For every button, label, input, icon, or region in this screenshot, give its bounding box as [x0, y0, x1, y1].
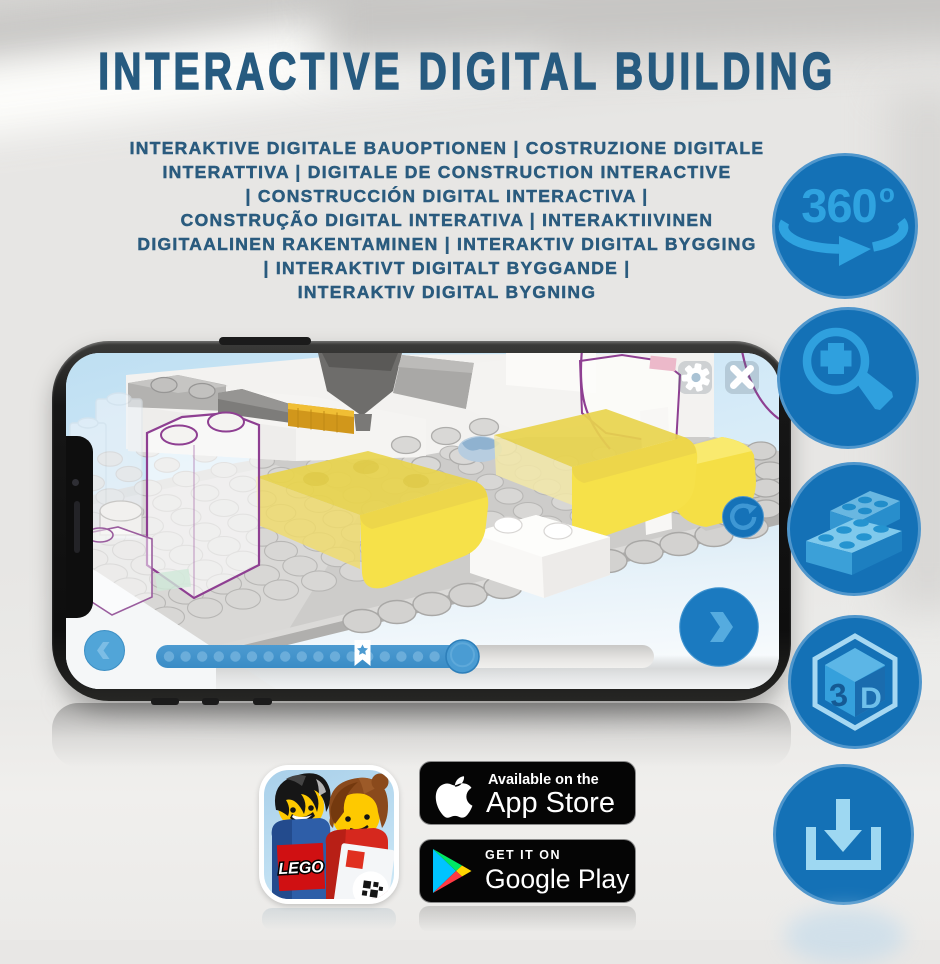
- svg-text:Available on the: Available on the: [488, 772, 599, 788]
- svg-text:360: 360: [801, 179, 876, 232]
- svg-text:o: o: [879, 178, 895, 208]
- svg-text:GET IT ON: GET IT ON: [485, 848, 561, 862]
- svg-text:LEGO: LEGO: [278, 859, 325, 878]
- svg-text:D: D: [860, 682, 882, 715]
- svg-text:Google Play: Google Play: [485, 864, 630, 894]
- svg-text:App Store: App Store: [486, 787, 615, 819]
